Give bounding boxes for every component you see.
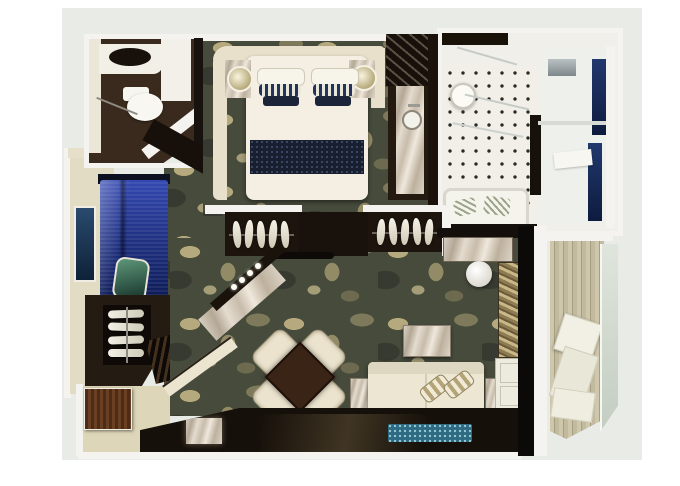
side-table-left	[350, 378, 369, 413]
glass-balustrade	[600, 244, 618, 432]
marble-console	[443, 237, 513, 262]
wc-right-wall	[161, 39, 191, 101]
bathroom-right-outer-wall	[606, 46, 615, 228]
hanger	[424, 219, 434, 246]
bath-divider-wall	[530, 115, 541, 195]
hall-floor-gap	[298, 212, 368, 256]
wall-light	[239, 277, 245, 283]
pillow-right-cushion	[315, 96, 351, 106]
wall-artwork	[74, 206, 96, 282]
window-glass-wall	[518, 226, 534, 456]
master-bedroom	[203, 34, 437, 216]
wardrobe-right	[368, 212, 442, 252]
pillow-left-cushion	[263, 96, 299, 106]
hanger	[256, 221, 265, 248]
hanger	[232, 221, 242, 249]
wc-basin	[109, 48, 151, 66]
coffee-table	[403, 325, 451, 357]
hanger	[376, 219, 386, 245]
shower-fixture	[548, 59, 576, 76]
pillow-left-striped	[259, 84, 301, 96]
blue-rug-overlay	[388, 424, 472, 442]
wall-light	[255, 263, 261, 269]
window-outer-wall	[534, 226, 547, 456]
shower-partition	[538, 121, 610, 125]
wardrobe-left	[225, 212, 298, 256]
entry-marble-bench	[186, 418, 222, 444]
washstand-faucet	[408, 104, 420, 107]
wall-light	[231, 284, 237, 290]
hanger	[412, 218, 422, 245]
shelf-rod	[126, 307, 128, 363]
lounger-2	[550, 387, 596, 423]
balcony-top-wall	[547, 232, 613, 241]
sofa	[368, 362, 484, 414]
hanger	[400, 219, 409, 245]
round-stool	[466, 261, 492, 287]
bed-lamp-left	[227, 66, 253, 92]
cabinet-panel	[500, 363, 519, 383]
glass-shelf-1	[457, 46, 517, 65]
shelving-unit	[103, 305, 151, 365]
hanger	[388, 218, 398, 246]
bed-runner-navy	[250, 140, 364, 174]
towel-roll-1	[453, 197, 478, 217]
wall-light	[247, 270, 253, 276]
washstand-marble	[396, 86, 424, 194]
bedroom-bathroom-wall	[428, 34, 438, 226]
cabinet-panel	[500, 386, 519, 406]
entry-door-frame	[76, 384, 83, 456]
bottom-outer-wall	[78, 452, 522, 459]
washstand-sink	[402, 110, 422, 130]
towel-roll-2	[483, 195, 511, 216]
floorplan-render	[0, 0, 680, 486]
hanger	[244, 220, 254, 248]
toilet-bowl	[127, 93, 163, 121]
hanger	[280, 221, 290, 248]
pillow-right-striped	[313, 84, 355, 96]
bathroom-top-wall	[442, 33, 508, 45]
entry-door	[84, 388, 132, 430]
